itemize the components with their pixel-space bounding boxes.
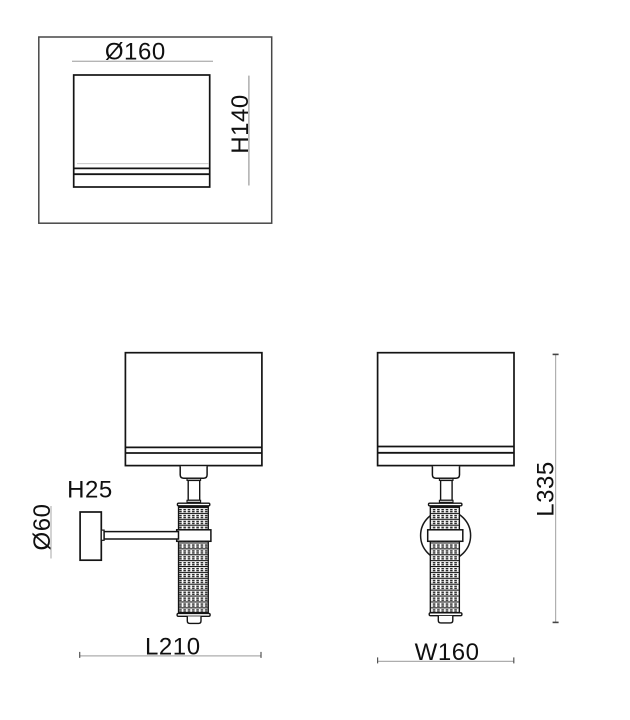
svg-text:L210: L210 (145, 633, 201, 660)
svg-text:L335: L335 (533, 461, 560, 517)
svg-text:W160: W160 (415, 639, 480, 666)
svg-text:H25: H25 (67, 477, 113, 504)
svg-text:Ø160: Ø160 (105, 39, 166, 66)
svg-text:Ø60: Ø60 (29, 503, 56, 550)
svg-text:H140: H140 (227, 94, 254, 154)
